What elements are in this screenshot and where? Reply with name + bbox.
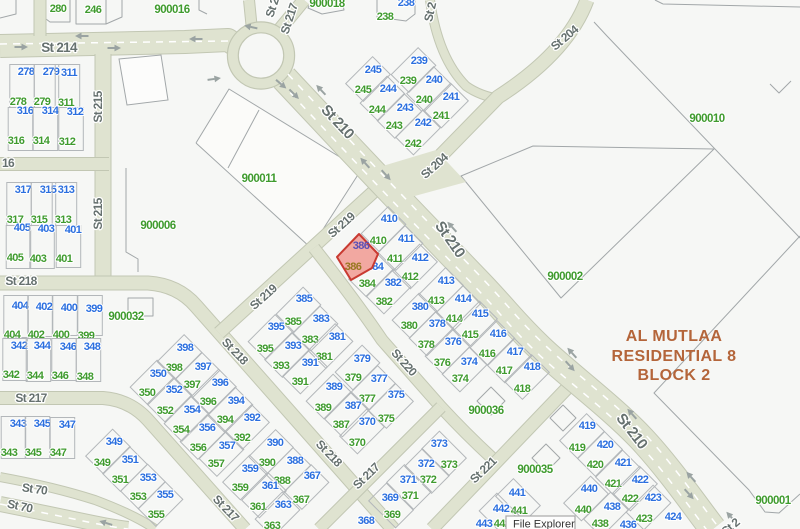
svg-text:344: 344 [34, 340, 52, 352]
svg-text:238: 238 [398, 0, 415, 9]
svg-text:399: 399 [86, 303, 103, 315]
svg-text:386: 386 [353, 240, 370, 252]
svg-text:400: 400 [61, 302, 78, 314]
svg-text:371: 371 [402, 490, 419, 502]
svg-text:346: 346 [60, 341, 77, 353]
svg-text:375: 375 [388, 389, 405, 401]
svg-text:351: 351 [122, 454, 139, 466]
svg-text:353: 353 [130, 491, 147, 503]
svg-text:440: 440 [581, 483, 598, 495]
svg-text:438: 438 [592, 518, 609, 529]
svg-text:346: 346 [52, 370, 69, 382]
svg-text:900006: 900006 [140, 220, 175, 232]
svg-text:423: 423 [636, 513, 653, 525]
svg-text:900035: 900035 [517, 464, 553, 476]
svg-text:343: 343 [10, 418, 27, 430]
svg-text:376: 376 [445, 336, 462, 348]
svg-text:402: 402 [36, 301, 53, 313]
svg-text:391: 391 [292, 376, 309, 388]
svg-text:393: 393 [273, 360, 290, 372]
svg-text:405: 405 [14, 222, 31, 234]
svg-text:369: 369 [382, 492, 399, 504]
svg-text:359: 359 [232, 482, 249, 494]
svg-text:374: 374 [452, 373, 470, 385]
svg-text:900002: 900002 [547, 271, 582, 283]
svg-text:344: 344 [27, 370, 45, 382]
svg-text:377: 377 [371, 373, 388, 385]
svg-text:317: 317 [15, 184, 32, 196]
svg-text:347: 347 [59, 419, 76, 431]
svg-text:398: 398 [166, 362, 183, 374]
svg-text:354: 354 [184, 404, 202, 416]
svg-text:382: 382 [385, 277, 402, 289]
svg-text:417: 417 [507, 346, 524, 358]
svg-text:404: 404 [12, 300, 30, 312]
svg-text:BLOCK 2: BLOCK 2 [637, 367, 710, 384]
svg-text:355: 355 [157, 489, 174, 501]
svg-text:352: 352 [157, 405, 174, 417]
svg-text:350: 350 [150, 368, 167, 380]
svg-text:900010: 900010 [689, 113, 724, 125]
svg-text:367: 367 [293, 494, 310, 506]
svg-text:419: 419 [569, 442, 586, 454]
svg-text:413: 413 [428, 295, 445, 307]
svg-text:900036: 900036 [468, 405, 503, 417]
svg-text:410: 410 [381, 213, 398, 225]
svg-text:405: 405 [7, 252, 24, 264]
svg-text:900016: 900016 [154, 4, 189, 16]
svg-text:389: 389 [326, 381, 343, 393]
svg-text:359: 359 [242, 463, 259, 475]
svg-text:388: 388 [287, 455, 304, 467]
svg-text:AL MUTLAA: AL MUTLAA [626, 328, 723, 345]
svg-text:417: 417 [496, 365, 513, 377]
svg-text:436: 436 [620, 519, 637, 529]
svg-text:347: 347 [50, 447, 67, 459]
svg-text:349: 349 [94, 457, 111, 469]
svg-text:398: 398 [177, 342, 194, 354]
svg-text:357: 357 [219, 440, 236, 452]
svg-text:379: 379 [345, 372, 362, 384]
svg-text:383: 383 [313, 313, 330, 325]
svg-text:279: 279 [43, 66, 60, 78]
svg-text:413: 413 [438, 275, 455, 287]
svg-text:396: 396 [200, 396, 217, 408]
svg-text:312: 312 [67, 106, 84, 118]
svg-text:403: 403 [30, 253, 47, 265]
svg-text:386: 386 [345, 261, 362, 273]
svg-text:343: 343 [1, 447, 18, 459]
svg-text:401: 401 [65, 224, 82, 236]
svg-text:442: 442 [493, 503, 510, 515]
svg-text:424: 424 [665, 511, 683, 523]
svg-text:422: 422 [632, 474, 649, 486]
svg-text:369: 369 [384, 509, 401, 521]
svg-text:421: 421 [615, 457, 632, 469]
svg-text:361: 361 [262, 480, 279, 492]
svg-text:438: 438 [604, 501, 621, 513]
svg-text:372: 372 [418, 458, 435, 470]
svg-text:443: 443 [476, 518, 493, 529]
svg-text:345: 345 [25, 447, 42, 459]
svg-text:381: 381 [329, 331, 346, 343]
svg-text:RESIDENTIAL 8: RESIDENTIAL 8 [612, 348, 737, 365]
svg-text:900011: 900011 [242, 173, 278, 185]
svg-text:355: 355 [148, 509, 165, 521]
svg-text:313: 313 [58, 184, 75, 196]
svg-text:246: 246 [85, 4, 102, 16]
svg-text:900032: 900032 [108, 311, 143, 323]
svg-text:350: 350 [139, 387, 156, 399]
svg-text:391: 391 [302, 357, 319, 369]
svg-text:422: 422 [622, 493, 639, 505]
svg-text:415: 415 [472, 308, 489, 320]
svg-text:397: 397 [195, 361, 212, 373]
svg-text:363: 363 [264, 520, 281, 529]
svg-text:383: 383 [302, 334, 319, 346]
svg-text:342: 342 [11, 340, 28, 352]
svg-text:380: 380 [401, 320, 418, 332]
svg-text:418: 418 [524, 361, 541, 373]
svg-text:412: 412 [412, 252, 429, 264]
svg-text:238: 238 [377, 11, 394, 23]
svg-text:372: 372 [420, 474, 437, 486]
svg-text:374: 374 [461, 356, 479, 368]
svg-text:392: 392 [244, 412, 261, 424]
svg-text:396: 396 [212, 377, 229, 389]
svg-text:St 215: St 215 [91, 90, 105, 122]
svg-text:401: 401 [56, 253, 73, 265]
svg-text:241: 241 [443, 91, 460, 103]
svg-text:314: 314 [42, 105, 60, 117]
svg-text:16: 16 [2, 156, 15, 170]
svg-text:352: 352 [166, 384, 183, 396]
svg-text:385: 385 [296, 293, 313, 305]
svg-text:410: 410 [370, 235, 387, 247]
svg-text:St 214: St 214 [41, 40, 78, 55]
svg-text:357: 357 [208, 458, 225, 470]
svg-text:421: 421 [605, 478, 622, 490]
svg-text:380: 380 [412, 301, 429, 313]
svg-text:416: 416 [479, 348, 496, 360]
svg-text:395: 395 [268, 321, 285, 333]
svg-text:394: 394 [228, 395, 246, 407]
svg-text:St 218: St 218 [5, 274, 37, 288]
svg-text:349: 349 [106, 436, 123, 448]
svg-text:St 215: St 215 [91, 197, 105, 229]
svg-text:423: 423 [645, 492, 662, 504]
svg-text:382: 382 [376, 296, 393, 308]
svg-text:361: 361 [250, 501, 267, 513]
svg-text:389: 389 [315, 402, 332, 414]
svg-text:243: 243 [397, 102, 414, 114]
svg-text:373: 373 [431, 438, 448, 450]
svg-text:403: 403 [38, 223, 55, 235]
svg-text:241: 241 [433, 110, 450, 122]
svg-text:242: 242 [405, 138, 422, 150]
svg-text:370: 370 [359, 416, 376, 428]
svg-text:379: 379 [354, 353, 371, 365]
svg-text:File Explorer: File Explorer [513, 519, 575, 529]
svg-text:378: 378 [429, 318, 446, 330]
svg-text:900018: 900018 [309, 0, 345, 10]
svg-text:390: 390 [267, 437, 284, 449]
svg-text:243: 243 [386, 120, 403, 132]
svg-text:353: 353 [140, 472, 157, 484]
svg-text:316: 316 [17, 105, 34, 117]
svg-text:240: 240 [426, 74, 443, 86]
svg-text:414: 414 [455, 293, 473, 305]
svg-text:314: 314 [33, 135, 51, 147]
svg-text:400: 400 [53, 329, 70, 341]
svg-text:244: 244 [380, 83, 398, 95]
svg-text:371: 371 [400, 474, 417, 486]
svg-text:419: 419 [579, 420, 596, 432]
svg-text:368: 368 [358, 515, 375, 527]
svg-text:239: 239 [400, 75, 417, 87]
svg-text:311: 311 [61, 67, 77, 79]
svg-text:345: 345 [34, 418, 51, 430]
svg-text:242: 242 [415, 117, 432, 129]
svg-text:245: 245 [365, 64, 382, 76]
svg-text:239: 239 [411, 55, 428, 67]
svg-text:280: 280 [50, 3, 67, 15]
svg-text:416: 416 [490, 328, 507, 340]
svg-text:315: 315 [40, 184, 57, 196]
svg-text:342: 342 [3, 369, 20, 381]
svg-text:348: 348 [77, 371, 94, 383]
svg-text:312: 312 [59, 136, 76, 148]
svg-text:900001: 900001 [755, 495, 791, 507]
svg-text:356: 356 [190, 442, 207, 454]
svg-text:316: 316 [8, 135, 25, 147]
svg-text:393: 393 [285, 340, 302, 352]
svg-text:356: 356 [199, 422, 216, 434]
svg-text:278: 278 [18, 66, 35, 78]
svg-text:420: 420 [587, 459, 604, 471]
svg-text:370: 370 [349, 437, 366, 449]
svg-text:376: 376 [434, 357, 451, 369]
svg-text:412: 412 [402, 271, 419, 283]
svg-text:St 217: St 217 [15, 391, 47, 405]
svg-text:348: 348 [84, 341, 101, 353]
svg-text:420: 420 [597, 439, 614, 451]
svg-text:411: 411 [398, 233, 414, 245]
svg-text:441: 441 [509, 487, 526, 499]
svg-text:415: 415 [462, 329, 479, 341]
svg-text:351: 351 [112, 474, 129, 486]
svg-text:363: 363 [275, 499, 292, 511]
svg-text:387: 387 [345, 400, 362, 412]
svg-text:367: 367 [304, 470, 321, 482]
svg-text:418: 418 [514, 383, 531, 395]
